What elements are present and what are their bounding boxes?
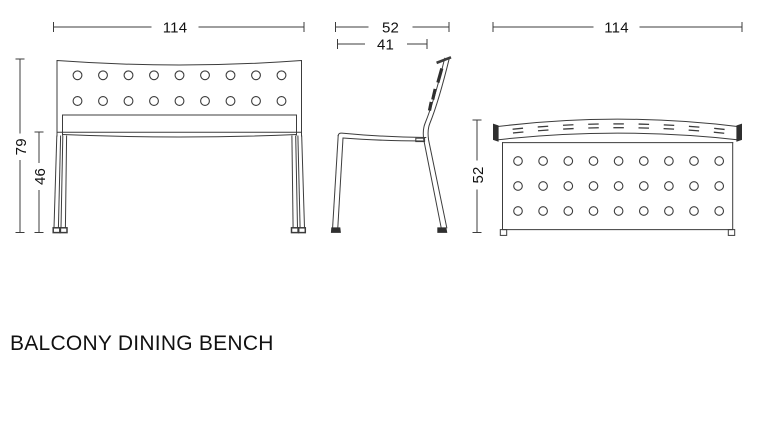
top-depth-label: 52 [470,166,487,183]
top-backrest-left-cap [493,124,499,142]
top-depth-dimension: 52 [470,120,487,233]
front-width-dimension: 114 [54,20,305,37]
perforation-hole [252,71,261,80]
slat-mark [538,126,547,130]
top-view: 114 52 [470,20,742,236]
perforation-hole [614,207,623,216]
side-seat-bottom [343,138,423,141]
perforation-hole [614,182,623,191]
perforation-hole [514,207,523,216]
spec-text-block: BALCONY DINING BENCH WIDTH 114 CM | 45” … [10,260,274,433]
slat-mark [689,126,698,130]
slat-mark [614,124,623,128]
perforation-hole [73,97,82,106]
front-height-label: 79 [13,138,30,155]
perforation-hole [690,157,699,166]
front-width-label: 114 [163,20,188,37]
perforation-hole [201,97,210,106]
perforation-hole [715,207,724,216]
perforation-hole [124,71,133,80]
side-seat-top [338,133,426,137]
perforation-hole [690,182,699,191]
front-frame-outline [57,61,302,137]
perforation-hole [226,71,235,80]
perforation-hole [589,182,598,191]
product-title: BALCONY DINING BENCH [10,327,274,360]
perforation-hole [277,97,286,106]
side-back-foot [437,227,447,233]
perforation-hole [99,97,108,106]
slat-mark [564,125,573,129]
side-depth-dimension: 52 [336,20,450,37]
perforation-hole [640,157,649,166]
perforation-hole [252,97,261,106]
dimension-drawings: 114 79 46 [0,0,770,250]
perforation-hole [99,71,108,80]
slat-mark [589,124,598,128]
perforation-hole [124,97,133,106]
perforation-hole [665,207,674,216]
perforation-hole [175,71,184,80]
front-seat-front-sag [63,135,297,138]
perforation-hole [614,157,623,166]
side-front-leg-inner [338,138,343,228]
slat-mark [639,124,648,128]
perforation-hole [589,157,598,166]
perforation-hole [665,157,674,166]
slat-mark [513,128,523,133]
front-seat-height-label: 46 [32,168,49,185]
perforation-hole [640,207,649,216]
side-depth-label: 52 [382,20,399,37]
side-front-foot [331,227,341,233]
top-backrest-slat-marks [513,124,724,133]
top-width-label: 114 [604,20,629,37]
perforation-hole [514,182,523,191]
top-backrest-top-curve [496,119,740,127]
perforation-hole [201,71,210,80]
perforation-hole [150,97,159,106]
perforation-hole [73,71,82,80]
top-right-foot [728,230,734,236]
perforation-hole [564,157,573,166]
perforation-hole [715,182,724,191]
slat-mark [664,125,673,129]
top-left-foot [500,230,506,236]
perforation-hole [226,97,235,106]
front-legs [54,136,305,228]
top-width-dimension: 114 [493,20,742,37]
front-backrest-holes [73,71,286,106]
top-backrest-right-cap [736,124,742,142]
perforation-hole [715,157,724,166]
front-view: 114 79 46 [13,20,306,233]
top-backrest-bottom-curve [496,133,740,140]
side-view: 52 41 [331,20,450,233]
perforation-hole [589,207,598,216]
perforation-hole [690,207,699,216]
perforation-hole [514,157,523,166]
slat-mark [714,128,724,133]
side-seat-depth-dimension: 41 [338,37,428,54]
perforation-hole [564,207,573,216]
perforation-hole [539,157,548,166]
perforation-hole [539,182,548,191]
front-height-dimension: 79 [13,59,30,233]
side-front-leg-outer [333,136,339,228]
top-seat-holes [514,157,724,216]
perforation-hole [640,182,649,191]
side-bracket-details [430,70,442,109]
perforation-hole [175,97,184,106]
perforation-hole [150,71,159,80]
side-seat-depth-label: 41 [377,37,394,54]
spec-width: WIDTH 114 CM | 45” [10,427,274,433]
product-dimension-diagram: 114 79 46 [0,0,770,433]
perforation-hole [564,182,573,191]
front-seat-height-dimension: 46 [32,132,49,233]
perforation-hole [277,71,286,80]
perforation-hole [665,182,674,191]
perforation-hole [539,207,548,216]
front-feet [53,228,305,233]
